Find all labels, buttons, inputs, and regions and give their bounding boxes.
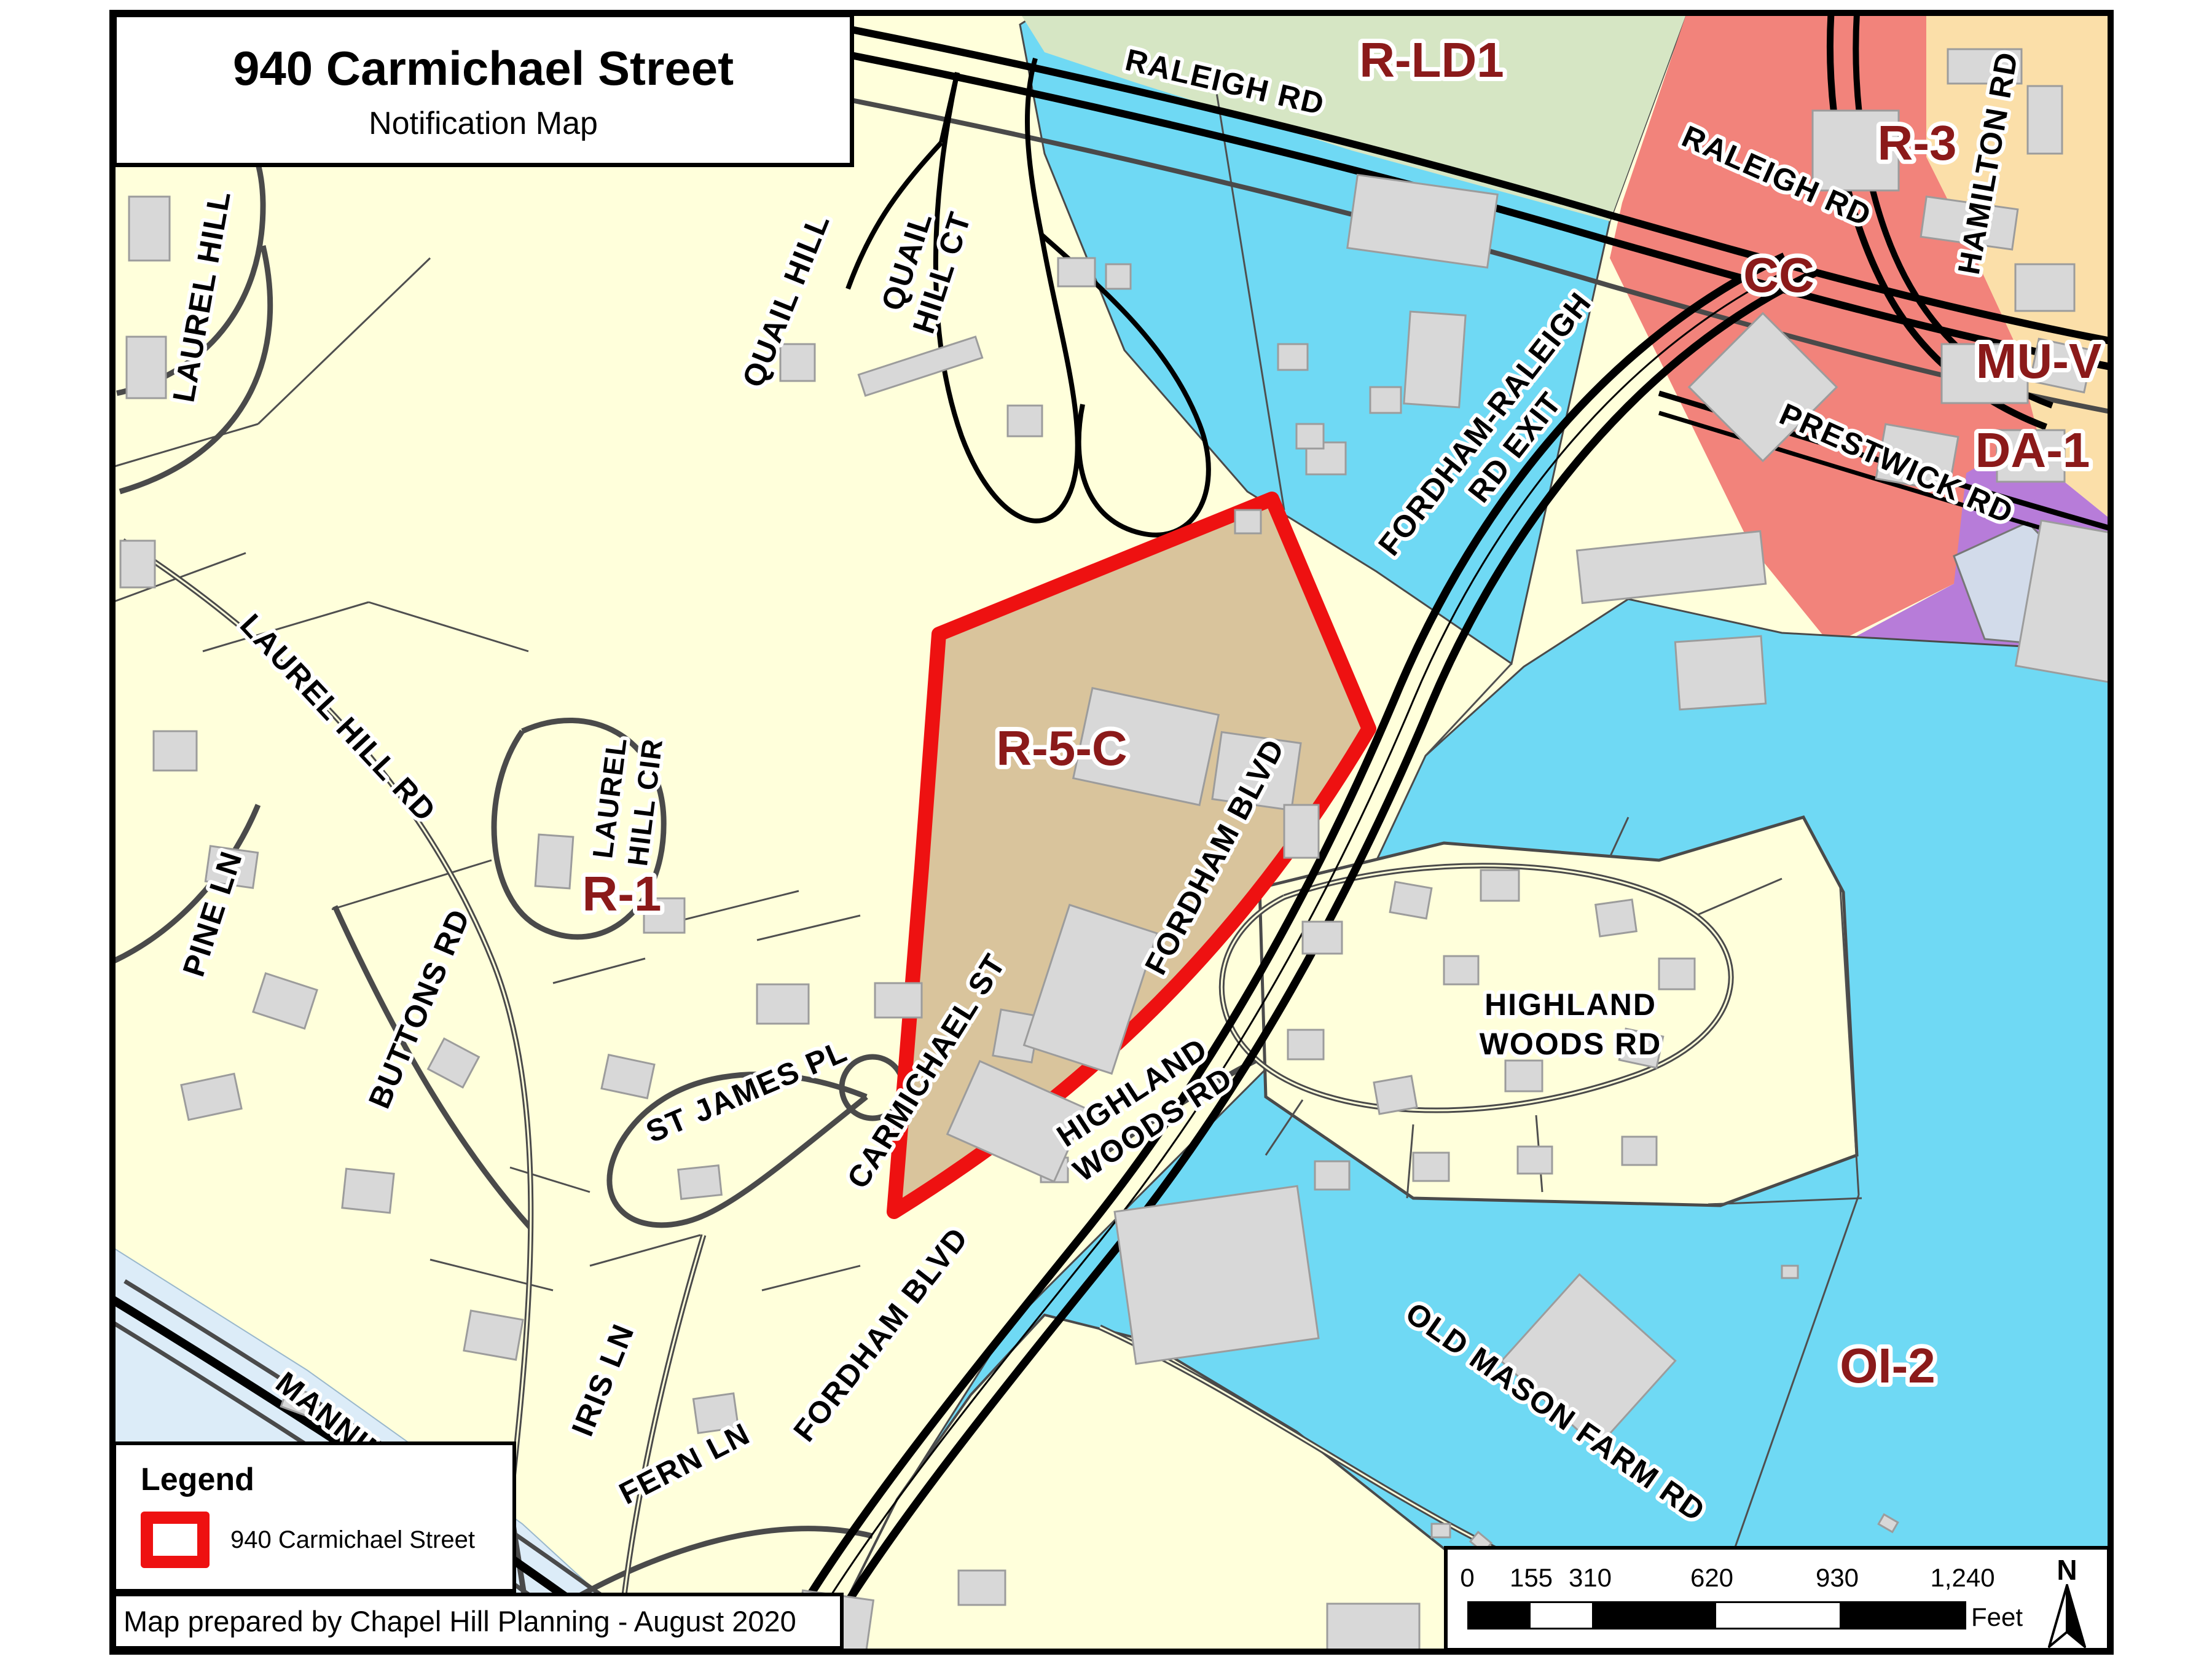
legend-heading: Legend — [141, 1461, 512, 1498]
scale-tick-310: 310 — [1569, 1563, 1612, 1593]
svg-text:WOODS RD: WOODS RD — [1480, 1027, 1662, 1061]
legend-item-label: 940 Carmichael Street — [230, 1526, 475, 1554]
map-title: 940 Carmichael Street — [117, 41, 850, 96]
credit-bar: Map prepared by Chapel Hill Planning - A… — [112, 1593, 844, 1650]
credit-text: Map prepared by Chapel Hill Planning - A… — [124, 1604, 796, 1638]
zone-label-r-1: R-1 — [582, 866, 662, 921]
title-box: 940 Carmichael Street Notification Map — [112, 13, 854, 167]
parcel-outline-swatch — [141, 1512, 210, 1568]
legend: Legend 940 Carmichael Street — [112, 1441, 516, 1593]
scale-bar-box: 0 155 310 620 930 1,240 Feet N — [1444, 1546, 2111, 1652]
zone-label-da-1: DA-1 — [1975, 423, 2090, 477]
map-subtitle: Notification Map — [117, 105, 850, 142]
scale-unit-label: Feet — [1971, 1602, 2023, 1632]
zone-label-mu-v: MU-V — [1976, 334, 2101, 388]
scale-tick-930: 930 — [1816, 1563, 1859, 1593]
scale-tick-155: 155 — [1510, 1563, 1553, 1593]
svg-text:HIGHLAND: HIGHLAND — [1484, 987, 1657, 1022]
zoning-map: RALEIGH RD RALEIGH RD HAMILTON RD PRESTW… — [0, 0, 2212, 1659]
scale-tick-620: 620 — [1690, 1563, 1733, 1593]
scale-tick-1240: 1,240 — [1930, 1563, 1994, 1593]
zone-label-cc: CC — [1743, 248, 1814, 302]
zone-label-oi-2: OI-2 — [1840, 1338, 1935, 1393]
scale-tick-0: 0 — [1460, 1563, 1474, 1593]
zone-label-r-ld1: R-LD1 — [1359, 33, 1504, 87]
zone-label-r-5-c: R-5-C — [996, 721, 1127, 775]
scale-bar — [1467, 1601, 1966, 1630]
north-arrow-icon — [2045, 1582, 2089, 1650]
legend-item: 940 Carmichael Street — [141, 1512, 475, 1568]
zone-label-r-3: R-3 — [1878, 116, 1957, 170]
